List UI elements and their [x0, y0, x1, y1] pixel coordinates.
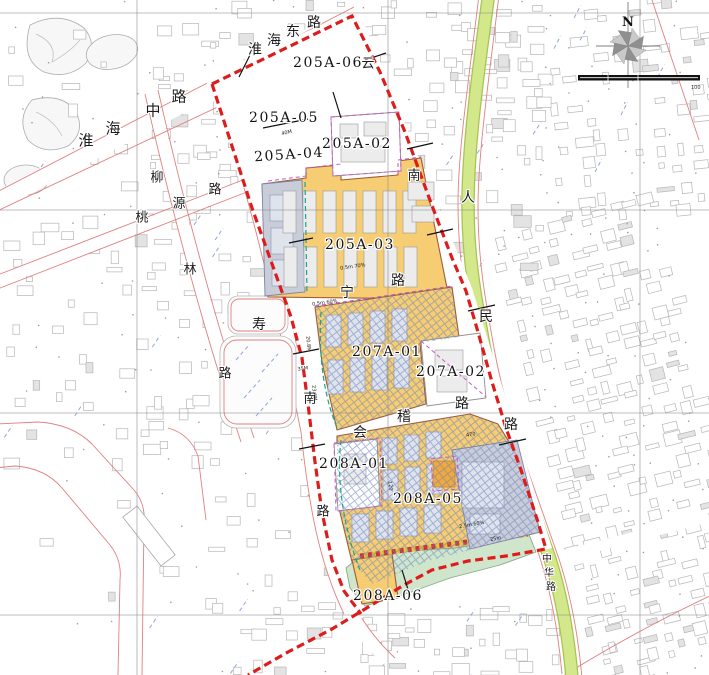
background-building [319, 603, 336, 610]
background-building [694, 160, 709, 170]
background-building [596, 506, 603, 513]
map-dot [470, 647, 472, 649]
background-building [636, 149, 643, 155]
background-building [221, 282, 229, 295]
background-building [541, 297, 551, 305]
map-dot [545, 127, 547, 129]
background-building [623, 619, 631, 628]
background-building [619, 432, 639, 448]
fabric-district [212, 599, 559, 675]
map-dot [48, 62, 50, 64]
map-dot [459, 606, 461, 608]
map-drawing: 淮海中路淮海东路桃源路柳林路寿宁路会稽路人民路中华路云南南路 205A-0620… [0, 0, 709, 675]
background-building [69, 104, 78, 117]
background-building [573, 480, 582, 490]
background-building [694, 145, 703, 153]
background-building [192, 456, 203, 469]
background-building [691, 588, 705, 598]
map-dot [544, 242, 546, 244]
background-building [41, 223, 59, 232]
map-dot [278, 458, 280, 460]
background-building [56, 393, 62, 402]
background-building [227, 517, 240, 526]
background-building [496, 32, 510, 42]
map-dot [672, 499, 674, 501]
map-dot [125, 391, 127, 393]
background-building [531, 44, 544, 54]
background-building [65, 381, 75, 390]
map-dot [585, 302, 587, 304]
street-name-char-南路: 路 [316, 504, 329, 520]
background-building [80, 355, 87, 364]
map-dot [554, 406, 556, 408]
background-building [583, 245, 598, 254]
background-building [653, 383, 669, 395]
map-dot [247, 583, 249, 585]
background-building [17, 286, 33, 296]
background-building [581, 421, 596, 435]
map-dot [222, 671, 224, 673]
parcel-label-207A-01: 207A-01 [352, 344, 422, 360]
background-building [529, 246, 539, 254]
background-building [33, 232, 44, 245]
map-dot [504, 230, 506, 232]
background-building [587, 614, 604, 624]
background-building [575, 137, 594, 148]
map-dot [643, 425, 645, 427]
slope-dash [620, 102, 629, 115]
background-building [430, 83, 444, 93]
background-building [180, 362, 192, 374]
map-dot [624, 102, 626, 104]
map-dot [633, 464, 635, 466]
background-building [668, 308, 682, 316]
background-building [243, 256, 250, 261]
background-building [700, 32, 709, 39]
map-dot [174, 141, 176, 143]
map-dot [679, 593, 681, 595]
row-building [383, 191, 396, 233]
map-dot [196, 566, 198, 568]
background-building [369, 666, 384, 675]
map-dot [245, 473, 247, 475]
background-building [646, 281, 661, 294]
background-building [68, 300, 74, 307]
background-building [554, 275, 570, 286]
parcel-label-208A-05: 208A-05 [393, 491, 463, 507]
background-building [657, 146, 666, 157]
background-building [527, 349, 534, 358]
map-dot [656, 227, 658, 229]
map-dot [22, 108, 24, 110]
background-building [625, 566, 638, 579]
background-building [27, 430, 37, 440]
map-dot [540, 174, 542, 176]
map-dot [223, 322, 225, 324]
background-building [493, 633, 500, 645]
map-dot [72, 222, 74, 224]
background-building [549, 238, 558, 247]
background-building [649, 498, 658, 508]
street-name-char-桃源路: 桃 [135, 211, 148, 226]
scale-end-label: 100 [691, 85, 701, 91]
background-building [603, 659, 610, 665]
background-building [583, 156, 596, 168]
map-dot [418, 670, 420, 672]
background-building [193, 396, 209, 406]
background-building [452, 663, 469, 675]
background-building [669, 580, 676, 587]
map-dot [545, 66, 547, 68]
map-dot [216, 111, 218, 113]
map-dot [669, 134, 671, 136]
background-building [174, 74, 183, 81]
map-dot [608, 88, 610, 90]
background-building [594, 52, 609, 61]
map-dot [591, 578, 593, 580]
map-dot [15, 27, 17, 29]
background-building [247, 539, 257, 548]
map-dot [121, 334, 123, 336]
parcel-label-208A-01: 208A-01 [319, 456, 389, 472]
background-building [211, 459, 220, 466]
map-dot [150, 369, 152, 371]
map-dot [605, 217, 607, 219]
background-building [178, 154, 189, 164]
map-dot [590, 233, 592, 235]
street-name-char-中华路: 中 [542, 552, 552, 565]
background-building [159, 85, 171, 89]
background-building [107, 267, 122, 272]
map-dot [643, 523, 645, 525]
street-name-char-云南南路: 云 [361, 57, 374, 72]
map-dot [195, 182, 197, 184]
background-building [450, 72, 458, 80]
background-building [116, 429, 128, 439]
background-building [643, 19, 656, 32]
background-building [590, 319, 599, 326]
background-building [179, 409, 188, 420]
map-dot [273, 0, 275, 1]
background-building [573, 318, 588, 328]
background-building [202, 119, 216, 124]
background-building [154, 240, 171, 245]
background-building [537, 97, 551, 108]
background-building [463, 50, 473, 55]
background-building [333, 613, 343, 619]
street-name-char-会稽路: 会 [353, 425, 367, 441]
map-dot [603, 273, 605, 275]
background-building [157, 302, 168, 310]
background-building [53, 326, 64, 333]
background-building [512, 253, 528, 262]
background-building [571, 335, 578, 342]
background-building [543, 278, 555, 292]
map-dot [518, 236, 520, 238]
street-name-char-桃源路: 路 [208, 182, 221, 198]
map-dot [130, 206, 132, 208]
map-dot [26, 390, 28, 392]
background-building [668, 350, 677, 356]
background-building [684, 443, 701, 453]
row-building [324, 247, 337, 287]
street-name-char-会稽路: 路 [455, 396, 469, 412]
map-dot [442, 143, 444, 145]
background-building [694, 39, 704, 45]
background-building [522, 229, 533, 241]
background-building [536, 147, 542, 160]
background-building [84, 313, 97, 325]
street-name-char-寿宁路: 宁 [340, 284, 354, 301]
background-building [487, 191, 498, 203]
background-building [437, 170, 452, 181]
background-building [556, 178, 563, 186]
background-building [562, 215, 572, 222]
map-dot [459, 15, 461, 17]
background-building [373, 25, 386, 34]
map-dot [216, 136, 218, 138]
background-building [83, 216, 98, 229]
map-dot [626, 550, 628, 552]
background-building [618, 222, 633, 231]
street-name-char-人民路: 路 [504, 417, 518, 433]
map-dot [252, 590, 254, 592]
background-building [415, 134, 428, 142]
map-dot [325, 671, 327, 673]
background-building [497, 78, 507, 88]
background-building [266, 619, 283, 625]
background-building [587, 387, 597, 396]
background-building [160, 441, 167, 448]
map-dot [546, 192, 548, 194]
background-building [582, 218, 592, 226]
background-building [584, 9, 598, 20]
map-dot [642, 552, 644, 554]
map-dot [688, 420, 690, 422]
background-building [65, 448, 74, 458]
map-dot [521, 1, 523, 3]
map-dot [568, 92, 570, 94]
map-dot [668, 510, 670, 512]
background-building [640, 269, 651, 280]
background-building [700, 501, 709, 509]
street-name-char-寿宁路: 寿 [252, 316, 266, 333]
background-building [598, 275, 615, 289]
background-building [525, 158, 530, 165]
background-building [194, 442, 211, 450]
background-building [390, 664, 406, 669]
background-building [540, 349, 552, 363]
background-building [418, 619, 431, 632]
background-building [120, 369, 135, 378]
background-building [179, 320, 189, 328]
background-building [307, 648, 325, 653]
street-name-char-淮海东路: 路 [307, 15, 321, 31]
background-building [624, 521, 635, 527]
background-building [519, 662, 533, 673]
background-building [234, 667, 242, 674]
street-name-char-淮海中路: 淮 [78, 132, 93, 150]
background-building [211, 43, 216, 48]
background-building [642, 405, 653, 416]
map-dot [577, 352, 579, 354]
map-dot [631, 172, 633, 174]
street-name-char-云南南路: 南 [407, 168, 420, 184]
background-building [15, 398, 25, 406]
map-dot [410, 608, 412, 610]
map-dot [219, 214, 221, 216]
map-dot [58, 356, 60, 358]
map-dot [647, 250, 649, 252]
background-building [152, 263, 165, 270]
slope-dash [240, 599, 248, 611]
background-building [444, 58, 456, 67]
background-building [141, 430, 149, 437]
street-name-char-柳林路: 路 [218, 366, 231, 382]
map-dot [634, 355, 636, 357]
background-building [149, 422, 164, 430]
map-dot [666, 672, 668, 674]
background-building [666, 360, 679, 367]
background-building [620, 235, 634, 247]
background-building [251, 269, 267, 277]
background-building [101, 62, 106, 67]
background-building [151, 163, 156, 169]
background-building [585, 627, 593, 637]
row-building [343, 191, 356, 233]
map-dot [42, 96, 44, 98]
map-dot [607, 355, 609, 357]
slope-dash [215, 228, 223, 240]
background-building [657, 186, 675, 192]
background-building [552, 655, 559, 665]
street-name-char-淮海东路: 淮 [248, 42, 262, 58]
street-name-char-淮海东路: 海 [267, 33, 281, 49]
map-dot [674, 25, 676, 27]
map-dot [568, 47, 570, 49]
map-dot [702, 489, 704, 491]
map-dot [132, 280, 134, 282]
map-dot [628, 510, 630, 512]
map-dot [198, 422, 200, 424]
background-building [698, 193, 705, 201]
background-building [426, 50, 439, 61]
parcel-label-207A-02: 207A-02 [416, 364, 486, 380]
street-name-char-桃源路: 源 [172, 197, 185, 212]
background-building [521, 297, 532, 306]
background-building [498, 55, 509, 67]
background-building [565, 360, 580, 370]
map-dot [532, 315, 534, 317]
map-dot [237, 573, 239, 575]
background-building [337, 2, 344, 6]
map-dot [73, 148, 75, 150]
map-dot [452, 107, 454, 109]
background-building [532, 110, 545, 121]
background-building [580, 514, 591, 523]
background-building [643, 576, 660, 586]
map-dot [31, 122, 33, 124]
background-building [678, 430, 696, 439]
row-building [283, 191, 296, 233]
map-dot [700, 655, 702, 657]
background-building [121, 182, 138, 191]
street-name-char-柳林路: 林 [183, 263, 196, 278]
parcel-label-205A-05: 205A-05 [249, 110, 319, 126]
map-dot [585, 372, 587, 374]
background-building [187, 186, 197, 197]
row-building [304, 247, 317, 287]
background-building [148, 272, 156, 279]
map-dot [546, 28, 548, 30]
map-dot [178, 337, 180, 339]
background-building [572, 395, 584, 403]
map-dot [103, 424, 105, 426]
map-dot [627, 232, 629, 234]
background-building [643, 634, 658, 643]
background-building [677, 499, 690, 508]
background-building [621, 199, 636, 208]
map-dot [669, 379, 671, 381]
background-building [153, 68, 163, 79]
background-building [665, 633, 674, 642]
background-building [634, 638, 642, 644]
background-building [597, 15, 606, 21]
street-name-char-淮海中路: 中 [145, 102, 160, 120]
map-dot [633, 192, 635, 194]
background-building [109, 592, 116, 601]
background-building [701, 425, 709, 433]
row-building [303, 191, 316, 233]
background-building [209, 547, 225, 551]
background-building [526, 387, 540, 402]
row-building [284, 247, 297, 287]
background-building [496, 98, 514, 103]
background-building [586, 584, 598, 591]
slope-dash [533, 122, 541, 134]
map-dot [571, 233, 573, 235]
map-dot [679, 72, 681, 74]
background-building [117, 501, 130, 509]
background-building [111, 251, 118, 264]
background-building [668, 650, 675, 657]
background-building [391, 1, 397, 8]
background-building [587, 399, 601, 412]
map-dot [124, 1, 126, 3]
background-building [681, 182, 692, 194]
background-building [4, 458, 20, 469]
background-building [198, 153, 211, 160]
background-building [113, 459, 123, 471]
background-building [144, 444, 161, 454]
background-building [559, 310, 569, 319]
parcel-label-205A-03: 205A-03 [325, 237, 395, 253]
background-building [83, 403, 93, 411]
map-dot [135, 369, 137, 371]
background-building [581, 207, 591, 216]
background-building [163, 567, 179, 577]
map-dot [595, 465, 597, 467]
background-building [155, 397, 162, 410]
map-dot [514, 621, 516, 623]
map-dot [597, 301, 599, 303]
background-building [528, 27, 544, 33]
background-building [533, 5, 543, 11]
background-building [286, 631, 297, 640]
background-building [592, 365, 611, 378]
background-building [547, 455, 561, 467]
street-name-char-人民路: 民 [479, 309, 493, 325]
